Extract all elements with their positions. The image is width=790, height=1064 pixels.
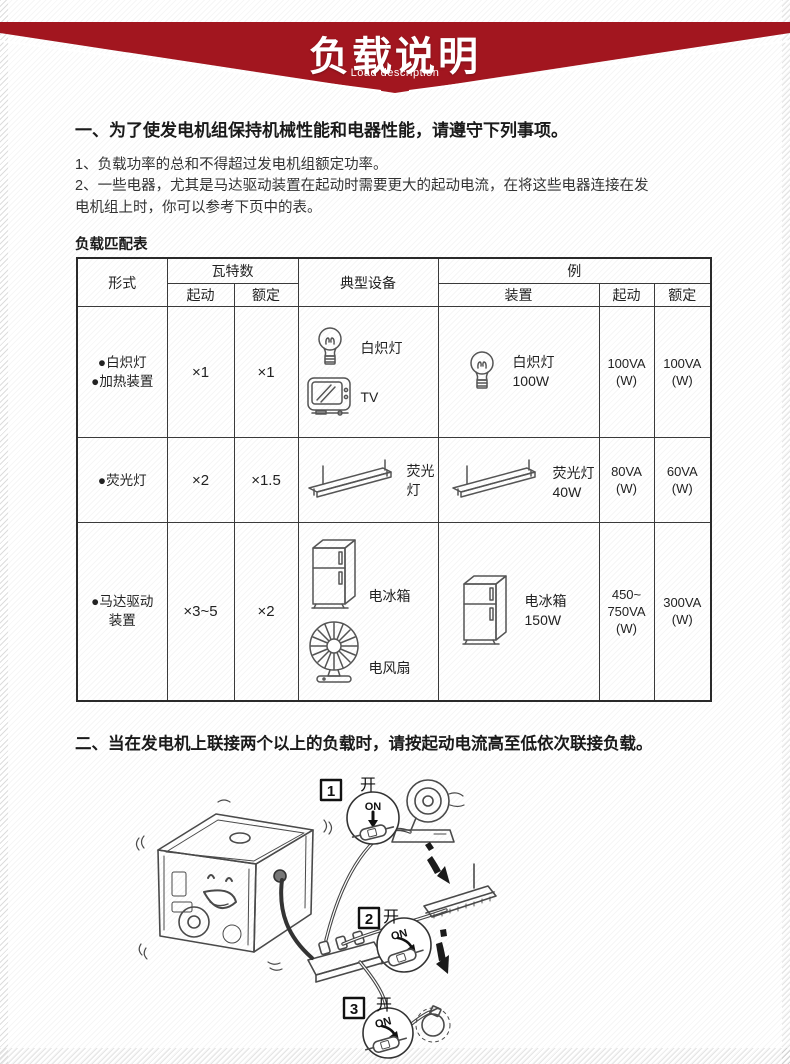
header-banner: 负载说明 Load description (0, 0, 790, 100)
section1-item1: 1、负载功率的总和不得超过发电机组额定功率。 (75, 153, 388, 174)
section1-heading: 一、为了使发电机组保持机械性能和电器性能，请遵守下列事项。 (75, 116, 568, 141)
right-margin-stripe (782, 0, 790, 1064)
row1-example-start: 100VA (W) (599, 307, 654, 438)
row3-typical-cell: 电冰箱 (298, 523, 438, 701)
tv-icon (299, 376, 361, 418)
row1-example-rated: 100VA (W) (654, 307, 711, 438)
row2-form-line1: ●荧光灯 (98, 473, 147, 488)
spotlight-icon (392, 780, 464, 842)
col-header-example-start: 起动 (599, 284, 654, 307)
row3-typical-label1: 电冰箱 (369, 587, 411, 606)
hanging-bulb-icon (416, 1006, 450, 1042)
fluorescent-tube-icon (449, 458, 543, 502)
step3-switch-label: 开 (376, 997, 392, 1014)
generator-cable (281, 880, 312, 958)
fluorescent-tube-icon (305, 458, 399, 502)
section1-item2-line1: 2、一些电器，尤其是马达驱动装置在起动时需要更大的起动电流，在将这些电器连接在发 (75, 178, 649, 194)
step1-number: 1 (327, 783, 335, 800)
step2-switch-label: 开 (383, 909, 399, 926)
row2-typical-cell: 荧光灯 (298, 438, 438, 523)
step3-number: 3 (350, 1001, 358, 1018)
table-row: ●荧光灯 ×2 ×1.5 荧光灯 (77, 438, 711, 523)
col-header-form: 形式 (77, 258, 167, 307)
col-header-typical: 典型设备 (298, 258, 438, 307)
row1-start-multiplier: ×1 (167, 307, 234, 438)
row2-example-rated: 60VA (W) (654, 438, 711, 523)
section1-item2-line2: 电机组上时，你可以参考下页中的表。 (75, 200, 322, 216)
row2-device-label: 荧光灯 40W (553, 464, 595, 502)
row1-form-line1: ●白炽灯 (98, 355, 147, 370)
left-margin-stripe (0, 0, 8, 1064)
step1-switch-label: 开 (360, 777, 376, 794)
table-row: ●马达驱动 装置 ×3~5 ×2 (77, 523, 711, 701)
row3-form-line1: ●马达驱动 (91, 594, 153, 609)
row3-form-line2: 装置 (109, 613, 136, 628)
section2-heading: 二、当在发电机上联接两个以上的负载时，请按起动电流高至低依次联接负载。 (75, 730, 653, 754)
row2-example-start: 80VA (W) (599, 438, 654, 523)
load-table-title: 负载匹配表 (75, 233, 148, 254)
row2-form-cell: ●荧光灯 (77, 438, 167, 523)
row3-form-cell: ●马达驱动 装置 (77, 523, 167, 701)
generator-icon (137, 800, 332, 970)
row1-device-label: 白炽灯 100W (513, 353, 555, 391)
row2-device-cell: 荧光灯 40W (438, 438, 599, 523)
row3-device-label: 电冰箱 150W (525, 592, 567, 630)
row1-form-line2: ●加热装置 (91, 374, 153, 389)
connection-sequence-illustration: 1 开 ON 2 开 ON 3 开 ON (128, 772, 552, 1062)
step1-on-label: ON (365, 801, 382, 813)
row1-rated-multiplier: ×1 (234, 307, 298, 438)
electric-fan-icon (299, 620, 369, 684)
row1-typical-label2: TV (361, 388, 379, 407)
sequence-arrow-icon (425, 842, 450, 884)
section1-item2: 2、一些电器，尤其是马达驱动装置在起动时需要更大的起动电流，在将这些电器连接在发… (75, 175, 715, 219)
step2-number: 2 (365, 911, 373, 928)
row2-start-multiplier: ×2 (167, 438, 234, 523)
row3-rated-multiplier: ×2 (234, 523, 298, 701)
row1-typical-label1: 白炽灯 (361, 339, 403, 358)
col-header-start: 起动 (167, 284, 234, 307)
row3-example-start: 450~ 750VA (W) (599, 523, 654, 701)
row3-typical-label2: 电风扇 (369, 659, 411, 678)
row1-typical-cell: 白炽灯 TV (298, 307, 438, 438)
row3-example-rated: 300VA (W) (654, 523, 711, 701)
col-header-example: 例 (438, 258, 711, 284)
row2-rated-multiplier: ×1.5 (234, 438, 298, 523)
row2-typical-label1: 荧光灯 (407, 462, 438, 500)
col-header-device: 装置 (438, 284, 599, 307)
sequence-arrow-icon (436, 929, 449, 974)
load-matching-table: 形式 瓦特数 典型设备 例 起动 额定 装置 起动 额定 ●白炽灯 ●加热装置 … (76, 257, 712, 702)
row1-device-cell: 白炽灯 100W (438, 307, 599, 438)
col-header-rated: 额定 (234, 284, 298, 307)
table-row: ●白炽灯 ●加热装置 ×1 ×1 白炽灯 (77, 307, 711, 438)
page-subtitle: Load description (0, 67, 790, 79)
incandescent-bulb-icon (467, 350, 497, 394)
incandescent-bulb-icon (299, 326, 361, 370)
row3-device-cell: 电冰箱 150W (438, 523, 599, 701)
refrigerator-icon (461, 574, 509, 648)
col-header-wattage: 瓦特数 (167, 258, 298, 284)
col-header-example-rated: 额定 (654, 284, 711, 307)
row3-start-multiplier: ×3~5 (167, 523, 234, 701)
row1-form-cell: ●白炽灯 ●加热装置 (77, 307, 167, 438)
refrigerator-icon (299, 538, 369, 612)
